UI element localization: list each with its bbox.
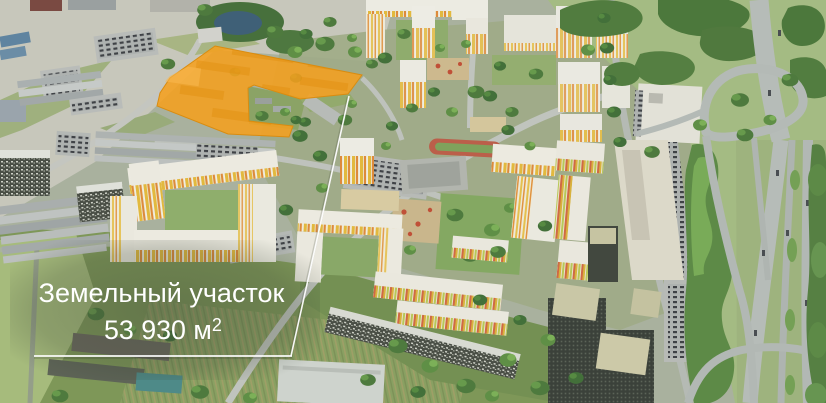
svg-text:53 930 м2: 53 930 м2 (104, 315, 222, 345)
svg-text:Земельный участок: Земельный участок (39, 278, 285, 308)
